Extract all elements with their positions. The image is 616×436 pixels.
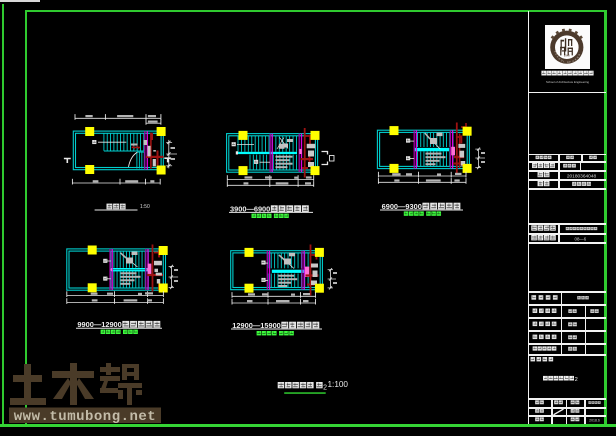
svg-text:www.tumubong.net: www.tumubong.net bbox=[14, 409, 156, 425]
